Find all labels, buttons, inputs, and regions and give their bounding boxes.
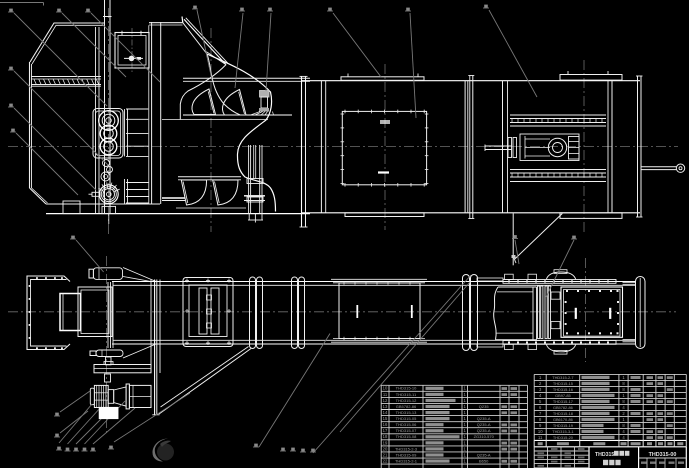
svg-text:11: 11 [538,435,543,440]
svg-text:THD315-17: THD315-17 [553,399,573,404]
svg-text:Q235-A: Q235-A [477,416,491,421]
svg-text:19: 19 [383,440,388,445]
svg-text:THD315-20: THD315-20 [553,435,574,440]
svg-text:THD315-12: THD315-12 [396,398,417,403]
svg-text:THD315-16: THD315-16 [553,387,573,392]
svg-text:11: 11 [383,392,388,397]
svg-text:20: 20 [383,446,388,451]
svg-text:14: 14 [383,410,388,415]
svg-text:THD315-09: THD315-09 [396,452,417,457]
svg-text:Q235-A: Q235-A [477,428,491,433]
svg-text:THD315-10: THD315-10 [396,386,417,391]
svg-text:18: 18 [383,434,388,439]
svg-text:GB97-85: GB97-85 [555,393,571,398]
svg-text:B650: B650 [479,458,489,463]
svg-text:Q235-A: Q235-A [477,422,491,427]
svg-text:ZG310-570: ZG310-570 [474,434,495,439]
svg-text:THD315-2-1: THD315-2-1 [395,458,418,463]
svg-text:THD315-06: THD315-06 [396,422,417,427]
svg-text:12: 12 [383,398,388,403]
svg-text:13: 13 [383,404,388,409]
svg-text:THD315-2-3: THD315-2-3 [395,446,418,451]
svg-text:THD315-13: THD315-13 [396,410,417,415]
svg-text:THD315-05: THD315-05 [396,416,417,421]
svg-text:THD315-18: THD315-18 [553,411,573,416]
svg-text:Q235: Q235 [479,404,490,409]
svg-text:THD315-00: THD315-00 [649,452,677,458]
svg-text:THD315-2-7: THD315-2-7 [552,375,573,380]
svg-text:THD315-3-1: THD315-3-1 [552,429,573,434]
svg-text:Q235-A: Q235-A [477,452,491,457]
svg-text:GB6170-86: GB6170-86 [553,417,573,422]
svg-text:10: 10 [538,429,543,434]
svg-text:17: 17 [383,428,388,433]
svg-text:15: 15 [383,416,388,421]
svg-text:10: 10 [383,386,388,391]
svg-text:THD315-19: THD315-19 [553,423,573,428]
svg-text:THD315-11: THD315-11 [396,392,417,397]
svg-text:GB5782-86: GB5782-86 [396,404,417,409]
svg-text:16: 16 [383,422,388,427]
svg-text:THD315: THD315 [595,452,614,458]
svg-text:21: 21 [383,452,388,457]
svg-text:GB5782-86: GB5782-86 [553,405,573,410]
svg-text:THD315-15: THD315-15 [553,381,573,386]
svg-text:THD315-07: THD315-07 [396,428,417,433]
svg-text:THD315-08: THD315-08 [396,434,417,439]
svg-text:22: 22 [383,458,388,463]
